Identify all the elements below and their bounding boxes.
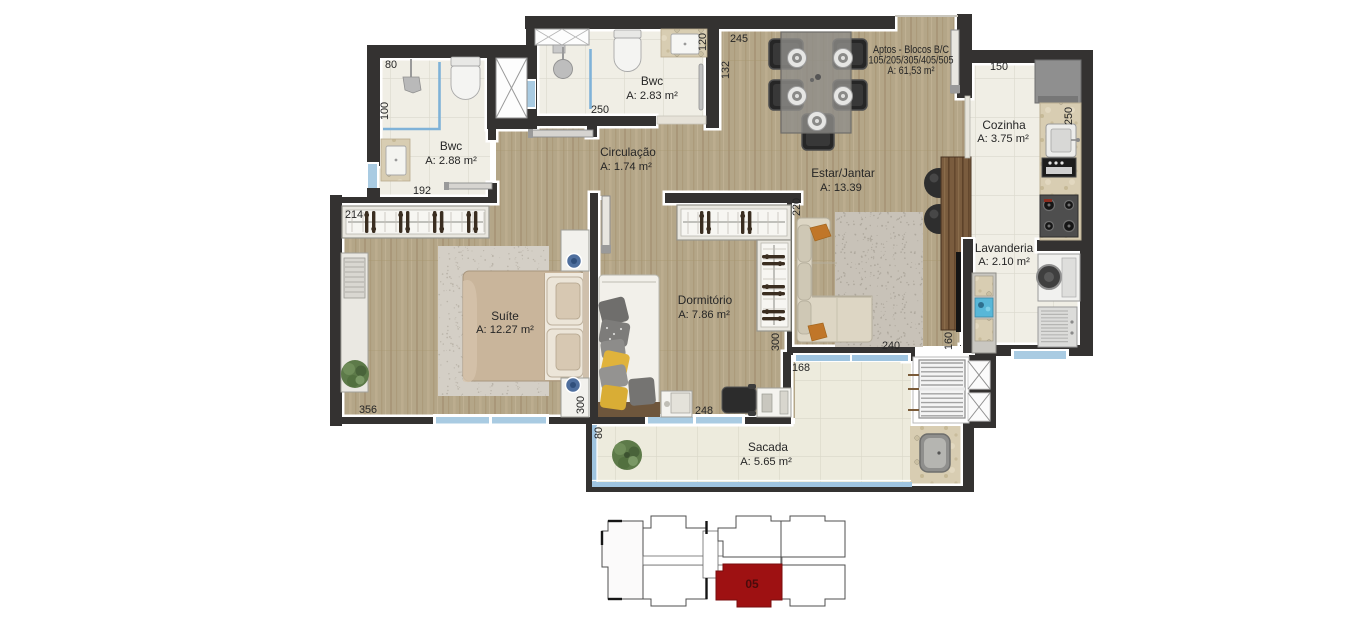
svg-text:150: 150 <box>990 61 1008 73</box>
svg-text:80: 80 <box>385 59 397 71</box>
svg-text:300: 300 <box>770 333 782 351</box>
svg-text:Cozinha: Cozinha <box>982 118 1026 132</box>
svg-text:248: 248 <box>695 405 713 417</box>
svg-text:A: 13.39: A: 13.39 <box>820 182 862 194</box>
svg-text:80: 80 <box>593 427 605 439</box>
svg-text:A: 7.86 m²: A: 7.86 m² <box>678 309 730 321</box>
svg-text:Sacada: Sacada <box>748 440 788 454</box>
svg-text:A: 12.27 m²: A: 12.27 m² <box>476 324 534 336</box>
svg-text:132: 132 <box>720 61 732 79</box>
svg-text:A: 2.10 m²: A: 2.10 m² <box>978 256 1030 268</box>
svg-text:Circulação: Circulação <box>600 145 656 159</box>
svg-text:A: 61,53 m²: A: 61,53 m² <box>888 65 935 77</box>
svg-text:214: 214 <box>345 209 363 221</box>
svg-text:05: 05 <box>745 577 759 591</box>
svg-text:250: 250 <box>1063 107 1075 125</box>
svg-text:A: 5.65 m²: A: 5.65 m² <box>740 456 792 468</box>
svg-text:160: 160 <box>943 332 955 350</box>
svg-text:Bwc: Bwc <box>440 139 462 153</box>
svg-text:120: 120 <box>697 33 709 51</box>
svg-text:Suíte: Suíte <box>491 309 519 323</box>
svg-text:A: 1.74 m²: A: 1.74 m² <box>600 161 652 173</box>
svg-text:192: 192 <box>413 185 431 197</box>
svg-text:A: 2.83 m²: A: 2.83 m² <box>626 90 678 102</box>
svg-text:Estar/Jantar: Estar/Jantar <box>811 166 875 180</box>
svg-text:Bwc: Bwc <box>641 74 663 88</box>
svg-text:220: 220 <box>791 198 803 216</box>
svg-text:100: 100 <box>379 102 391 120</box>
svg-text:300: 300 <box>575 396 587 414</box>
svg-text:250: 250 <box>591 104 609 116</box>
svg-text:356: 356 <box>359 404 377 416</box>
svg-text:168: 168 <box>792 362 810 374</box>
svg-text:Dormitório: Dormitório <box>678 293 733 307</box>
svg-text:A: 2.88 m²: A: 2.88 m² <box>425 155 477 167</box>
svg-text:Lavanderia: Lavanderia <box>975 241 1034 255</box>
svg-text:240: 240 <box>882 340 900 352</box>
svg-text:245: 245 <box>730 33 748 45</box>
svg-text:A: 3.75 m²: A: 3.75 m² <box>977 133 1029 145</box>
